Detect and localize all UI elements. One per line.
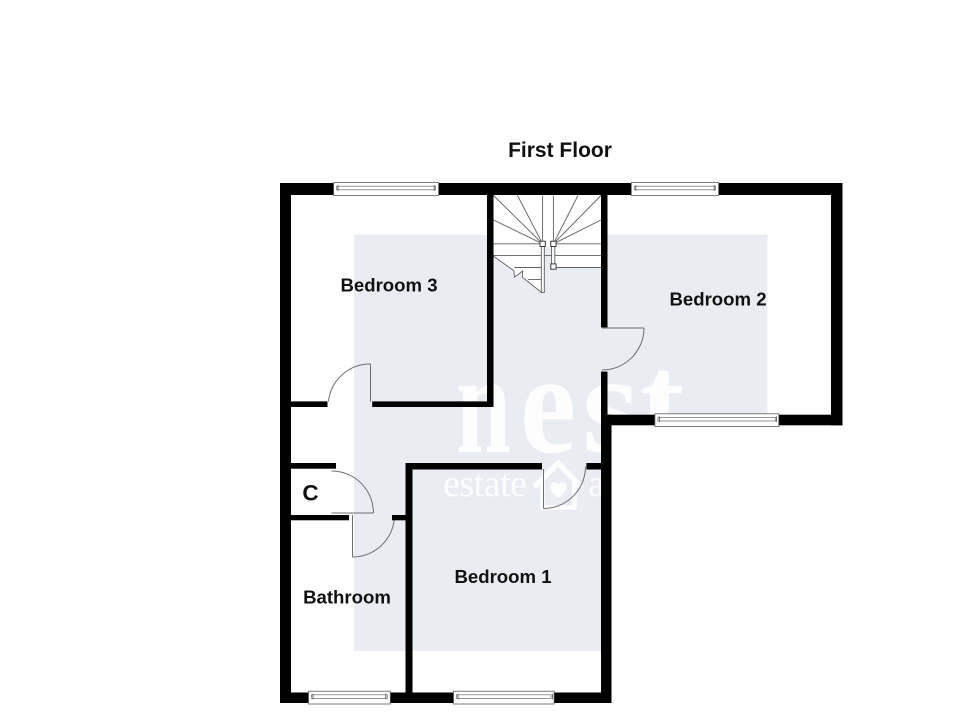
- svg-text:First Floor: First Floor: [508, 139, 612, 162]
- svg-text:Bathroom: Bathroom: [303, 587, 391, 608]
- svg-text:e: e: [520, 325, 576, 484]
- svg-text:t: t: [640, 325, 684, 484]
- svg-text:C: C: [302, 481, 318, 506]
- svg-text:Bedroom 3: Bedroom 3: [340, 275, 437, 296]
- svg-text:Bedroom 2: Bedroom 2: [669, 289, 766, 310]
- svg-text:Bedroom 1: Bedroom 1: [454, 566, 551, 587]
